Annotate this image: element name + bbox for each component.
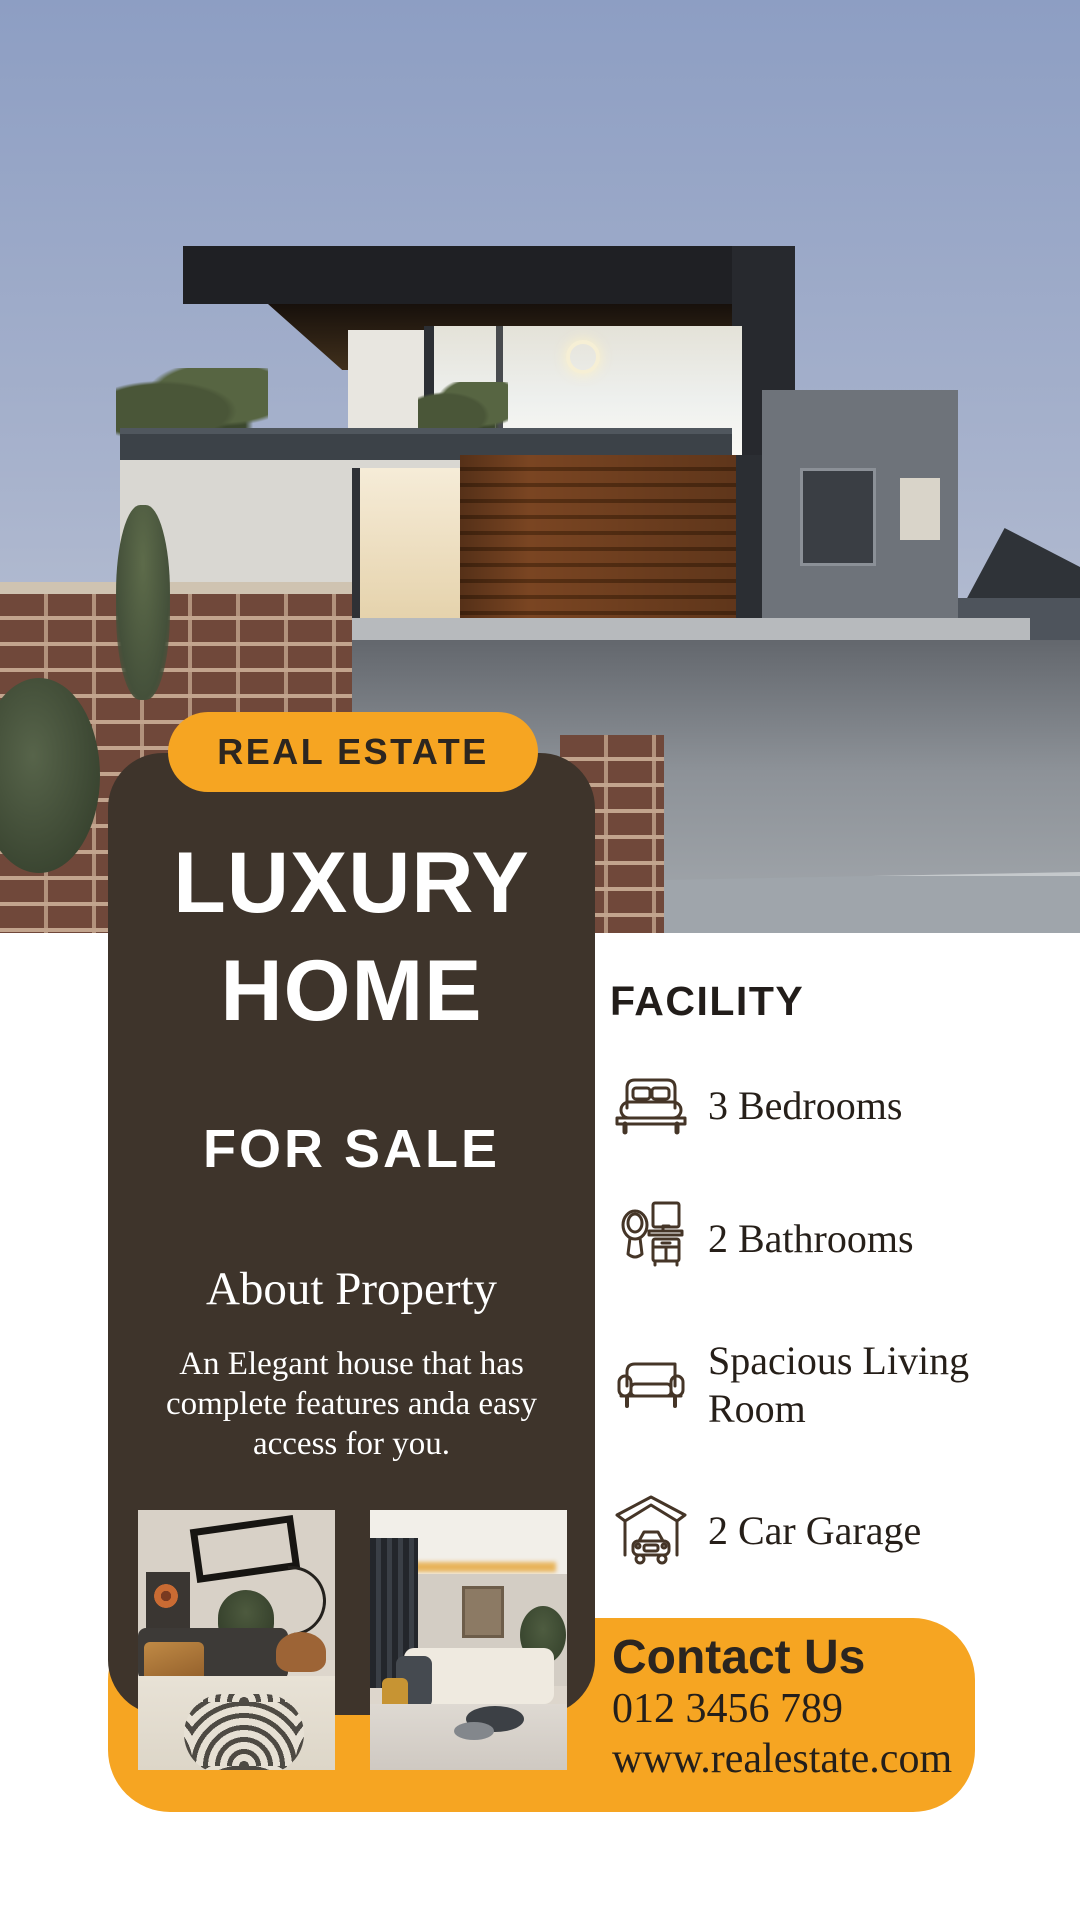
garage-icon <box>612 1491 690 1571</box>
wood-garage-door <box>460 455 736 637</box>
facility-title: FACILITY <box>610 978 804 1025</box>
headline-home: HOME <box>108 948 595 1034</box>
facility-label: 2 Car Garage <box>708 1507 921 1555</box>
info-card: LUXURY HOME FOR SALE About Property An E… <box>108 753 595 1715</box>
about-property-text: An Elegant house that has complete featu… <box>108 1344 595 1464</box>
contact-website: www.realestate.com <box>612 1734 952 1784</box>
facility-label: 2 Bathrooms <box>708 1215 914 1263</box>
photo2-wall-art <box>462 1586 504 1638</box>
for-sale-label: FOR SALE <box>108 1122 595 1176</box>
sofa-icon <box>612 1356 690 1414</box>
photo1-accent-chair <box>276 1632 326 1672</box>
about-property-heading: About Property <box>108 1266 595 1313</box>
interior-photo-living-room-1 <box>138 1510 335 1770</box>
photo1-art-flower <box>154 1584 178 1608</box>
contact-phone: 012 3456 789 <box>612 1684 843 1734</box>
facility-label: Spacious LivingRoom <box>708 1337 969 1433</box>
pendant-light <box>566 340 600 374</box>
ivy-vine <box>116 505 170 700</box>
real-estate-badge: REAL ESTATE <box>168 712 538 792</box>
photo1-rug-pattern <box>184 1694 304 1770</box>
facility-item-garage: 2 Car Garage <box>612 1488 921 1574</box>
bed-icon <box>612 1074 690 1138</box>
interior-photos-row <box>108 1510 595 1770</box>
bathroom-icon <box>612 1200 690 1278</box>
facility-label: 3 Bedrooms <box>708 1082 902 1130</box>
facility-item-living-room: Spacious LivingRoom <box>612 1336 969 1434</box>
contact-heading: Contact Us <box>612 1632 865 1684</box>
facility-item-bathrooms: 2 Bathrooms <box>612 1196 914 1282</box>
right-facade-window <box>800 468 876 566</box>
entry-corridor <box>352 468 476 640</box>
headline-luxury: LUXURY <box>108 840 595 926</box>
facility-item-bedrooms: 3 Bedrooms <box>612 1068 902 1144</box>
flyer-canvas: FACILITY 3 Bedrooms <box>0 0 1080 1920</box>
right-facade-small-window <box>900 478 940 540</box>
photo2-coffee-table-small <box>454 1722 494 1740</box>
dark-pillar <box>736 455 762 640</box>
main-roof-slab <box>183 246 795 304</box>
interior-photo-living-room-2 <box>370 1510 567 1770</box>
